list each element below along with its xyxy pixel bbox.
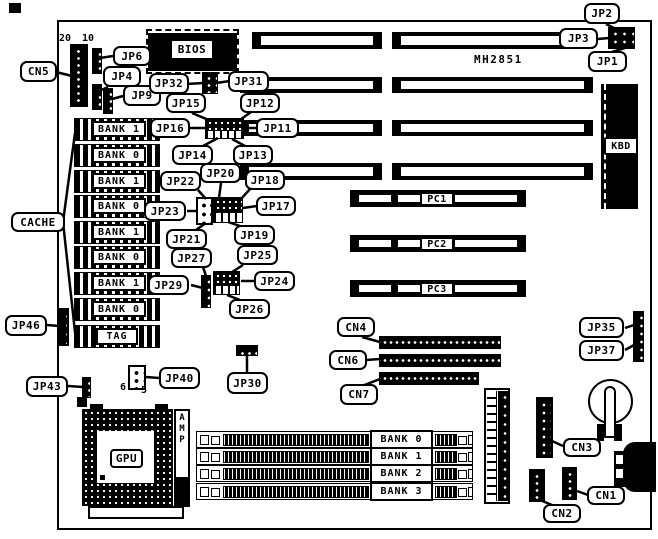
label-jp12: JP12 bbox=[240, 93, 280, 113]
label-jp20: JP20 bbox=[200, 163, 241, 183]
label-jp22: JP22 bbox=[160, 171, 201, 191]
label-jp16: JP16 bbox=[150, 118, 190, 138]
motherboard-diagram: 20 10 CN5 JP6 JP4 JP9 BIOS JP32 JP31 JP1… bbox=[0, 0, 658, 539]
label-jp23: JP23 bbox=[144, 201, 186, 221]
cn5-pin10-number: 10 bbox=[82, 33, 94, 44]
label-jp15: JP15 bbox=[166, 93, 206, 113]
label-jp11: JP11 bbox=[256, 118, 299, 138]
label-jp24: JP24 bbox=[254, 271, 295, 291]
label-cn7: CN7 bbox=[340, 384, 378, 405]
label-jp19: JP19 bbox=[234, 225, 275, 245]
pci-slot-label: PC2 bbox=[420, 237, 454, 251]
jp40-pin6-number: 6 bbox=[120, 382, 126, 393]
label-cn5: CN5 bbox=[20, 61, 57, 82]
label-cn3: CN3 bbox=[563, 438, 601, 457]
label-jp40: JP40 bbox=[159, 367, 200, 389]
label-jp37: JP37 bbox=[579, 340, 624, 361]
label-cn1: CN1 bbox=[587, 486, 625, 505]
label-jp46: JP46 bbox=[5, 315, 47, 336]
board-model-text: MH2851 bbox=[474, 53, 523, 66]
label-jp35: JP35 bbox=[579, 317, 624, 338]
label-jp18: JP18 bbox=[245, 170, 285, 190]
label-cn2: CN2 bbox=[543, 504, 581, 523]
cn5-pin20-number: 20 bbox=[59, 33, 71, 44]
label-cn4: CN4 bbox=[337, 317, 375, 337]
label-jp4: JP4 bbox=[103, 66, 141, 87]
label-bios: BIOS bbox=[170, 39, 214, 60]
label-jp27: JP27 bbox=[171, 248, 212, 268]
label-cache: CACHE bbox=[11, 212, 65, 232]
label-jp6: JP6 bbox=[113, 46, 151, 66]
callout-pointer-lines bbox=[0, 0, 658, 539]
label-jp14: JP14 bbox=[172, 145, 213, 165]
label-jp25: JP25 bbox=[237, 245, 278, 265]
label-kbd: KBD bbox=[604, 137, 638, 155]
label-jp30: JP30 bbox=[227, 372, 268, 394]
label-jp21: JP21 bbox=[166, 229, 207, 249]
label-jp1: JP1 bbox=[588, 51, 627, 72]
label-jp26: JP26 bbox=[229, 299, 270, 319]
label-jp2: JP2 bbox=[584, 3, 620, 24]
label-cn6: CN6 bbox=[329, 350, 367, 370]
label-jp29: JP29 bbox=[148, 275, 189, 295]
pci-slot-label: PC1 bbox=[420, 192, 454, 206]
pci-slot-label: PC3 bbox=[420, 282, 454, 296]
label-cpu-socket: GPU bbox=[110, 449, 143, 468]
label-jp32: JP32 bbox=[149, 73, 189, 94]
label-jp31: JP31 bbox=[228, 71, 269, 92]
jp40-pin5-number: 5 bbox=[141, 385, 147, 396]
label-jp43: JP43 bbox=[26, 376, 68, 397]
label-jp3: JP3 bbox=[559, 28, 598, 49]
label-jp13: JP13 bbox=[233, 145, 273, 165]
label-jp17: JP17 bbox=[256, 196, 296, 216]
